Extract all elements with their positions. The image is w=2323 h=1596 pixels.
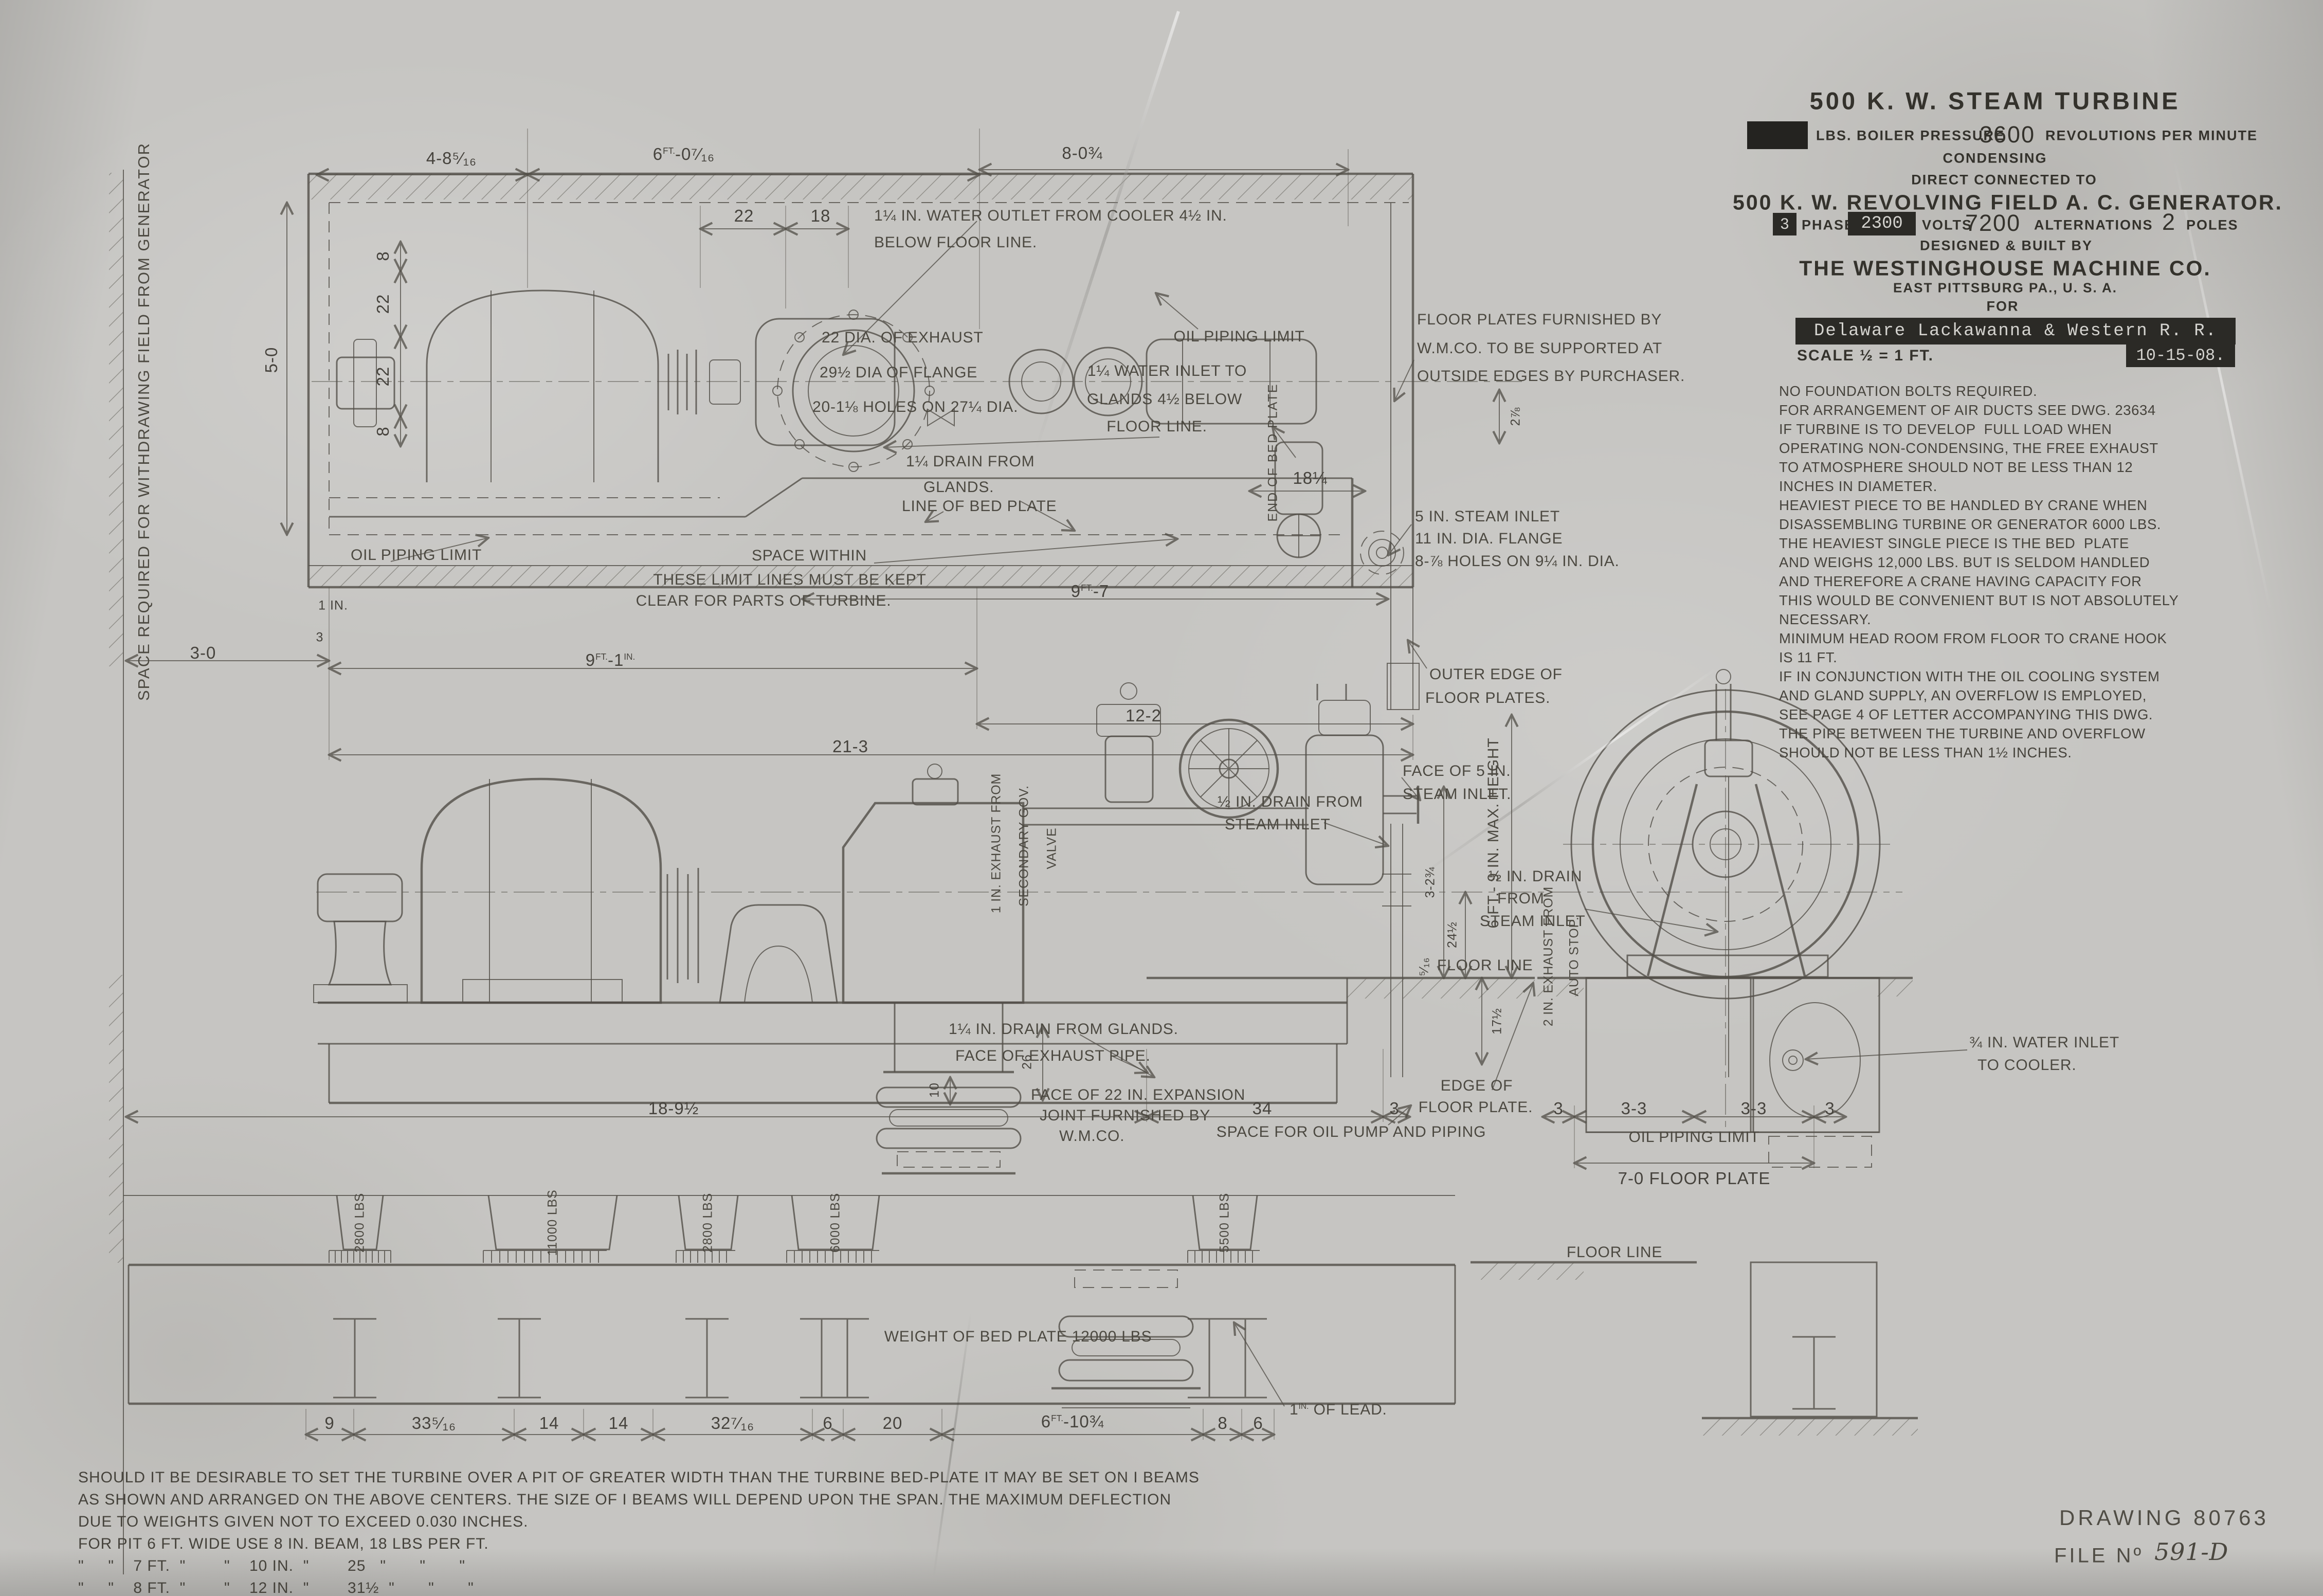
alternations-label: ALTERNATIONS <box>2034 217 2153 233</box>
space-required-note: SPACE REQUIRED FOR WITHDRAWING FIELD FRO… <box>135 142 153 701</box>
water-inlet-note-1: 1¼ WATER INLET TO <box>1087 362 1247 380</box>
endview-dim-3-left: 3 <box>1553 1099 1563 1118</box>
expansion-joint-note-1: FACE OF 22 IN. EXPANSION <box>1031 1086 1245 1104</box>
endview-dim-3-3-a: 3-3 <box>1621 1099 1647 1118</box>
rpm-label: REVOLUTIONS PER MINUTE <box>2045 128 2258 144</box>
note-line: IF TURBINE IS TO DEVELOP FULL LOAD WHEN <box>1779 420 2323 439</box>
boiler-pressure-label: LBS. BOILER PRESSURE <box>1816 128 2005 144</box>
plan-drain-glands-2: GLANDS. <box>923 479 994 496</box>
plan-dim-18-1-4: 18¼ <box>1293 468 1327 488</box>
note-line: SEE PAGE 4 OF LETTER ACCOMPANYING THIS D… <box>1779 705 2323 724</box>
fnd-dim-32-7-16: 32⁷⁄₁₆ <box>711 1413 755 1433</box>
fnd-dim-20: 20 <box>883 1413 903 1433</box>
company-address: EAST PITTSBURG PA., U. S. A. <box>1893 280 2117 296</box>
plan-dim-22-b: 22 <box>373 367 393 387</box>
foundation-linework <box>123 1195 1918 1440</box>
pit-note-line: " " 8 FT. " " 12 IN. " 31½ " " " <box>78 1577 1200 1596</box>
designed-by-label: DESIGNED & BUILT BY <box>1920 238 2093 254</box>
elev-dim-34: 34 <box>1253 1099 1273 1118</box>
floor-plates-note-3: OUTSIDE EDGES BY PURCHASER. <box>1417 368 1685 385</box>
fnd-dim-6ft-10-3-4: 6FT.-10¾ <box>1041 1412 1104 1431</box>
plan-dim-21-3: 21-3 <box>832 737 868 756</box>
note-line: AND WEIGHS 12,000 LBS. BUT IS SELDOM HAN… <box>1779 553 2323 572</box>
note-line: INCHES IN DIAMETER. <box>1779 477 2323 496</box>
note-line: THE HEAVIEST SINGLE PIECE IS THE BED PLA… <box>1779 534 2323 553</box>
phase-value-badge: 3 <box>1773 213 1796 235</box>
plan-dim-18: 18 <box>811 206 831 226</box>
exhaust-dia-note-2: 29½ DIA OF FLANGE <box>820 364 977 382</box>
fnd-dim-6-b: 6 <box>1253 1413 1263 1433</box>
endview-dim-3-right: 3 <box>1825 1099 1835 1118</box>
note-line: IS 11 FT. <box>1779 648 2323 667</box>
plan-dim-8-0-3-4: 8-0¾ <box>1062 143 1102 163</box>
note-line: IF IN CONJUNCTION WITH THE OIL COOLING S… <box>1779 667 2323 686</box>
elev-dim-5-16: ⁵⁄₁₆ <box>1417 957 1432 976</box>
exhaust-dia-note-3: 20-1⅛ HOLES ON 27¼ DIA. <box>812 398 1018 416</box>
plan-dim-1-in: 1 IN. <box>318 598 348 613</box>
pit-note-block: SHOULD IT BE DESIRABLE TO SET THE TURBIN… <box>78 1466 1200 1596</box>
plan-dim-22-a: 22 <box>373 294 393 314</box>
fnd-dim-33-5-16: 33⁵⁄₁₆ <box>412 1413 456 1433</box>
note-line: AND GLAND SUPPLY, AN OVERFLOW IS EMPLOYE… <box>1779 686 2323 705</box>
steam-inlet-note-2: 11 IN. DIA. FLANGE <box>1415 530 1563 548</box>
outer-edge-note-2: FLOOR PLATES. <box>1425 690 1550 707</box>
endview-drain-steam-1: ½ IN. DRAIN <box>1489 868 1582 885</box>
drawing-number: DRAWING 80763 <box>2059 1506 2269 1530</box>
scale-label: SCALE ½ = 1 FT. <box>1797 347 1934 365</box>
elev-drain-glands: 1¼ IN. DRAIN FROM GLANDS. <box>949 1021 1178 1038</box>
fnd-dim-9: 9 <box>324 1413 334 1433</box>
exhaust-secondary-gov-2: SECONDARY GOV. <box>1017 785 1032 906</box>
file-number-label: FILE Nº <box>2054 1545 2144 1568</box>
end-of-bed-plate-note: END OF BED PLATE <box>1266 383 1281 521</box>
water-inlet-cooler-1: ¾ IN. WATER INLET <box>1969 1034 2119 1051</box>
elev-dim-10: 10 <box>928 1082 942 1098</box>
plan-dim-12-2: 12-2 <box>1126 706 1161 726</box>
plan-dim-22: 22 <box>734 206 754 226</box>
fnd-dim-8: 8 <box>1218 1413 1227 1433</box>
note-line: HEAVIEST PIECE TO BE HANDLED BY CRANE WH… <box>1779 496 2323 515</box>
phase-label: PHASE <box>1802 217 1855 233</box>
boiler-pressure-redaction <box>1747 121 1808 149</box>
note-line: FOR ARRANGEMENT OF AIR DUCTS SEE DWG. 23… <box>1779 401 2323 420</box>
plan-dim-8-top: 8 <box>373 251 393 261</box>
for-label: FOR <box>1987 299 2019 315</box>
endview-dim-3-3-b: 3-3 <box>1741 1099 1767 1118</box>
note-line: NO FOUNDATION BOLTS REQUIRED. <box>1779 382 2323 401</box>
plan-dim-2-7-8: 2⅞ <box>1509 407 1523 426</box>
blueprint-sheet: 500 K. W. STEAM TURBINE LBS. BOILER PRES… <box>0 0 2323 1596</box>
customer-stamp: Delaware Lackawanna & Western R. R. <box>1795 318 2236 344</box>
exhaust-auto-stop-1: 2 IN. EXHAUST FROM <box>1541 886 1556 1026</box>
exhaust-secondary-gov-1: 1 IN. EXHAUST FROM <box>989 773 1004 913</box>
note-line: SHOULD NOT BE LESS THAN 1½ INCHES. <box>1779 743 2323 762</box>
notes-block: NO FOUNDATION BOLTS REQUIRED. FOR ARRANG… <box>1779 382 2323 762</box>
plan-dim-6-0-7-16: 6FT.-0⁷⁄₁₆ <box>653 144 715 164</box>
note-line: DISASSEMBLING TURBINE OR GENERATOR 6000 … <box>1779 515 2323 534</box>
space-within-note-1: SPACE WITHIN <box>752 547 867 565</box>
weight-label-5500: 5500 LBS <box>1218 1193 1232 1253</box>
face-of-exhaust-pipe: FACE OF EXHAUST PIPE. <box>955 1047 1151 1065</box>
plan-dim-3: 3 <box>316 630 324 645</box>
alternations-value: 7200 <box>1965 210 2021 237</box>
condensing-label: CONDENSING <box>1943 151 2047 167</box>
elev-floor-line-label: FLOOR LINE <box>1437 957 1533 974</box>
drain-from-steam-inlet-1: ½ IN. DRAIN FROM <box>1218 793 1363 811</box>
fnd-dim-6-a: 6 <box>823 1413 832 1433</box>
weight-label-11000: 11000 LBS <box>546 1189 560 1256</box>
plan-dim-9ft-1: 9FT.-1IN. <box>586 650 635 670</box>
bed-plate-weight-note: WEIGHT OF BED PLATE 12000 LBS <box>884 1328 1152 1346</box>
direct-connected-label: DIRECT CONNECTED TO <box>1911 172 2097 188</box>
rpm-value: 3600 <box>1980 121 2035 148</box>
exhaust-dia-note-1: 22 DIA. OF EXHAUST <box>822 329 983 347</box>
exhaust-secondary-gov-3: VALVE <box>1045 828 1060 869</box>
plan-dim-4-8-5-16: 4-8⁵⁄₁₆ <box>426 149 477 168</box>
edge-of-floor-plate-1: EDGE OF <box>1441 1077 1513 1095</box>
water-inlet-note-2: GLANDS 4½ BELOW <box>1087 391 1242 408</box>
endview-7-0-floor-plate: 7-0 FLOOR PLATE <box>1618 1169 1771 1188</box>
plan-dim-8-bottom: 8 <box>373 426 393 436</box>
pit-note-line: " " 7 FT. " " 10 IN. " 25 " " " <box>78 1555 1200 1577</box>
elev-dim-3-2-3-4: 3-2¾ <box>1423 867 1438 898</box>
weight-label-2800-b: 2800 LBS <box>701 1193 716 1253</box>
space-within-note-2: THESE LIMIT LINES MUST BE KEPT <box>653 571 926 589</box>
water-outlet-note-1: 1¼ IN. WATER OUTLET FROM COOLER 4½ IN. <box>874 207 1227 225</box>
elev-dim-18-9-1-2: 18-9½ <box>648 1099 699 1118</box>
poles-value: 2 <box>2162 209 2176 235</box>
pit-note-line: SHOULD IT BE DESIRABLE TO SET THE TURBIN… <box>78 1466 1200 1489</box>
space-for-oil-pump-note: SPACE FOR OIL PUMP AND PIPING <box>1217 1123 1486 1141</box>
expansion-joint-note-3: W.M.CO. <box>1059 1128 1124 1145</box>
oil-piping-limit-bottom: OIL PIPING LIMIT <box>351 547 482 564</box>
poles-label: POLES <box>2186 217 2239 233</box>
weight-label-6000: 6000 LBS <box>828 1193 843 1253</box>
pit-note-line: DUE TO WEIGHTS GIVEN NOT TO EXCEED 0.030… <box>78 1511 1200 1533</box>
plan-drain-glands-1: 1¼ DRAIN FROM <box>906 453 1035 470</box>
plan-dim-9ft-7: 9FT.-7 <box>1071 582 1110 601</box>
volts-value-badge: 2300 <box>1848 212 1916 235</box>
date-stamp: 10-15-08. <box>2126 343 2235 367</box>
note-line: MINIMUM HEAD ROOM FROM FLOOR TO CRANE HO… <box>1779 629 2323 648</box>
weight-label-2800-a: 2800 LBS <box>353 1193 368 1253</box>
steam-inlet-note-1: 5 IN. STEAM INLET <box>1415 508 1560 525</box>
elev-dim-24-1-2: 24½ <box>1445 921 1460 948</box>
title-main: 500 K. W. STEAM TURBINE <box>1810 87 2181 115</box>
note-line: TO ATMOSPHERE SHOULD NOT BE LESS THAN 12 <box>1779 458 2323 477</box>
elev-dim-17-1-2: 17½ <box>1490 1008 1505 1035</box>
note-line: THE PIPE BETWEEN THE TURBINE AND OVERFLO… <box>1779 724 2323 743</box>
edge-of-floor-plate-2: FLOOR PLATE. <box>1419 1099 1533 1116</box>
lead-note: 1IN. OF LEAD. <box>1290 1401 1387 1419</box>
endview-drain-steam-2: FROM <box>1497 890 1545 908</box>
outer-edge-note-1: OUTER EDGE OF <box>1429 666 1563 683</box>
floor-plates-note-1: FLOOR PLATES FURNISHED BY <box>1417 311 1662 329</box>
oil-piping-limit-top: OIL PIPING LIMIT <box>1173 328 1304 346</box>
note-line: THIS WOULD BE CONVENIENT BUT IS NOT ABSO… <box>1779 591 2323 610</box>
note-line: NECESSARY. <box>1779 610 2323 629</box>
water-inlet-note-3: FLOOR LINE. <box>1106 418 1207 436</box>
file-number-value: 591-D <box>2154 1538 2228 1566</box>
fnd-dim-14-a: 14 <box>539 1413 559 1433</box>
plan-dim-5-0: 5-0 <box>262 347 281 373</box>
note-line: OPERATING NON-CONDENSING, THE FREE EXHAU… <box>1779 439 2323 458</box>
fnd-dim-14-b: 14 <box>609 1413 629 1433</box>
drain-from-steam-inlet-2: STEAM INLET <box>1225 816 1331 833</box>
steam-inlet-note-3: 8-⅞ HOLES ON 9¼ IN. DIA. <box>1415 553 1620 570</box>
foundation-floor-line-label: FLOOR LINE <box>1567 1244 1662 1261</box>
line-of-bed-plate-note: LINE OF BED PLATE <box>902 498 1057 515</box>
company-name: THE WESTINGHOUSE MACHINE CO. <box>1799 257 2211 281</box>
floor-plates-note-2: W.M.CO. TO BE SUPPORTED AT <box>1417 340 1662 357</box>
sheet-border <box>109 170 123 1574</box>
pit-note-line: AS SHOWN AND ARRANGED ON THE ABOVE CENTE… <box>78 1489 1200 1511</box>
elev-dim-3: 3 <box>1389 1099 1399 1118</box>
endview-oil-piping-limit: OIL PIPING LIMIT <box>1628 1129 1759 1146</box>
note-line: AND THEREFORE A CRANE HAVING CAPACITY FO… <box>1779 572 2323 591</box>
pit-note-line: FOR PIT 6 FT. WIDE USE 8 IN. BEAM, 18 LB… <box>78 1533 1200 1555</box>
water-inlet-cooler-2: TO COOLER. <box>1977 1057 2076 1074</box>
water-outlet-note-2: BELOW FLOOR LINE. <box>874 234 1037 251</box>
expansion-joint-note-2: JOINT FURNISHED BY <box>1040 1107 1210 1125</box>
exhaust-auto-stop-2: AUTO STOP. <box>1567 916 1582 996</box>
space-within-note-3: CLEAR FOR PARTS OF TURBINE. <box>636 592 892 610</box>
plan-dim-3-0: 3-0 <box>190 643 216 663</box>
